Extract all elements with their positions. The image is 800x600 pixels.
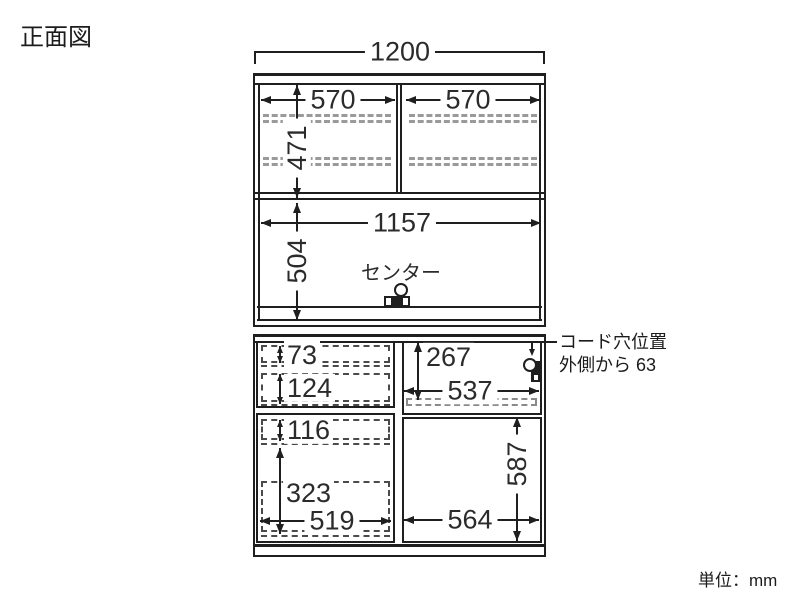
dim-label-587: 587 (503, 434, 531, 493)
drawer4-bottom-dashed-line (261, 535, 390, 537)
dim-label-537: 537 (442, 376, 497, 404)
dim-label-323: 323 (283, 479, 334, 507)
arrow-down-icon (513, 531, 521, 541)
drawing-title: 正面図 (20, 17, 92, 52)
arrow-left-icon (404, 387, 414, 395)
dim-label-1157: 1157 (368, 208, 436, 236)
dim-label-124: 124 (284, 374, 335, 402)
arrow-up-icon (414, 342, 422, 352)
arrow-down-icon (293, 188, 301, 198)
arrow-down-icon (529, 349, 535, 356)
unit-note: 単位：mm (698, 566, 777, 591)
arrow-left-icon (261, 219, 271, 227)
arrow-down-icon (277, 397, 283, 404)
arrow-right-icon (529, 387, 539, 395)
base-rail-line (254, 544, 544, 547)
center-position-label: センター (359, 257, 443, 286)
front-elevation-drawing: 正面図 単位：mm 1200 570 (0, 0, 800, 600)
cord-hole-note: コード穴位置 外側から 63 (559, 331, 667, 377)
upper-right-panel-line (539, 83, 541, 321)
arrow-up-icon (513, 417, 521, 427)
dim-label-267: 267 (423, 343, 474, 371)
shelf-dashed-line (409, 157, 537, 166)
arrow-up-icon (277, 374, 283, 381)
arrow-right-icon (530, 96, 540, 104)
arrow-up-icon (277, 420, 283, 427)
dim-label-519: 519 (304, 506, 359, 534)
sliding-door-divider-left (396, 85, 398, 193)
arrow-right-icon (385, 96, 395, 104)
arrow-left-icon (404, 516, 414, 524)
arrow-right-icon (531, 219, 541, 227)
upper-left-panel-line (258, 83, 260, 321)
dim-label-1200: 1200 (365, 37, 435, 65)
mid-shelf-line (255, 198, 544, 200)
arrow-left-icon (260, 517, 270, 525)
drawer2-bottom-dashed-line (261, 404, 390, 406)
dim-label-564: 564 (442, 505, 497, 533)
dim-label-570-left: 570 (305, 85, 360, 113)
arrow-left-icon (261, 96, 271, 104)
arrow-right-icon (529, 516, 539, 524)
callout-leader-line (531, 341, 557, 343)
arrow-down-icon (277, 434, 283, 441)
cord-hole-note-line1: コード穴位置 (559, 331, 667, 354)
arrow-down-icon (277, 356, 283, 363)
arrow-up-icon (293, 203, 301, 213)
dim-label-73: 73 (284, 341, 320, 369)
shelf-dashed-line (409, 114, 537, 123)
dim-label-471: 471 (283, 118, 311, 177)
dim-label-116: 116 (284, 416, 333, 444)
arrow-up-icon (293, 85, 301, 95)
arrow-down-icon (276, 524, 284, 534)
arrow-left-icon (406, 96, 416, 104)
dim-label-570-right: 570 (440, 85, 495, 113)
dimension-tick (543, 51, 545, 64)
dim-label-504: 504 (283, 231, 311, 290)
dimension-tick (254, 51, 256, 64)
arrow-up-icon (277, 346, 283, 353)
arrow-up-icon (276, 448, 284, 458)
sliding-door-divider-right (400, 85, 402, 193)
arrow-right-icon (381, 517, 391, 525)
cord-hole-note-line2: 外側から 63 (559, 354, 667, 377)
arrow-down-icon (293, 310, 301, 320)
drawer1-bottom-dashed-line (261, 365, 390, 367)
